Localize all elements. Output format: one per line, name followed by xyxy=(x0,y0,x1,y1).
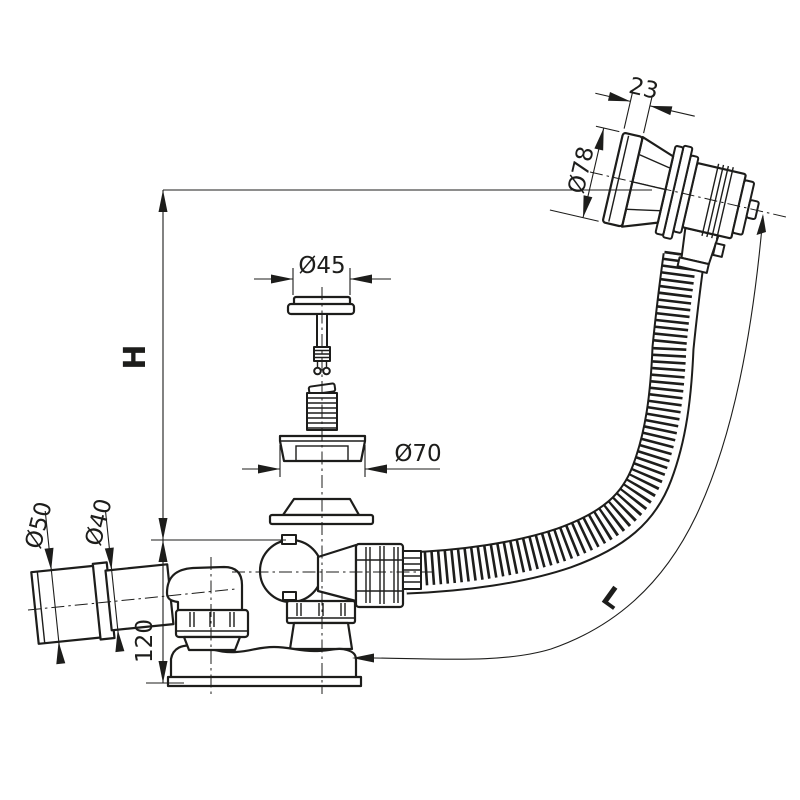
outlet-elbow xyxy=(167,567,248,650)
dim-label-plug-cap-diameter: Ø45 xyxy=(298,253,345,279)
dim-label-overall-height: H xyxy=(118,344,153,369)
dim-label-head-length: 23 xyxy=(626,73,660,105)
dim-label-body-height: 120 xyxy=(132,619,158,663)
dim-label-seal-diameter: Ø70 xyxy=(394,441,441,467)
dim-label-outlet-socket-diameter: Ø50 xyxy=(21,499,58,551)
overflow-head: 23 Ø78 xyxy=(544,62,781,281)
dimension-l: L xyxy=(352,214,766,663)
dim-label-head-diameter: Ø78 xyxy=(564,144,600,196)
dimension-23: 23 xyxy=(589,66,701,144)
technical-drawing: 23 Ø78 xyxy=(0,0,800,800)
corrugated-hose xyxy=(403,253,684,573)
plug-cap xyxy=(288,297,354,374)
dimension-h: H xyxy=(118,190,652,540)
drawing-canvas: 23 Ø78 xyxy=(0,0,800,800)
dim-label-outlet-pipe-diameter: Ø40 xyxy=(81,496,118,548)
